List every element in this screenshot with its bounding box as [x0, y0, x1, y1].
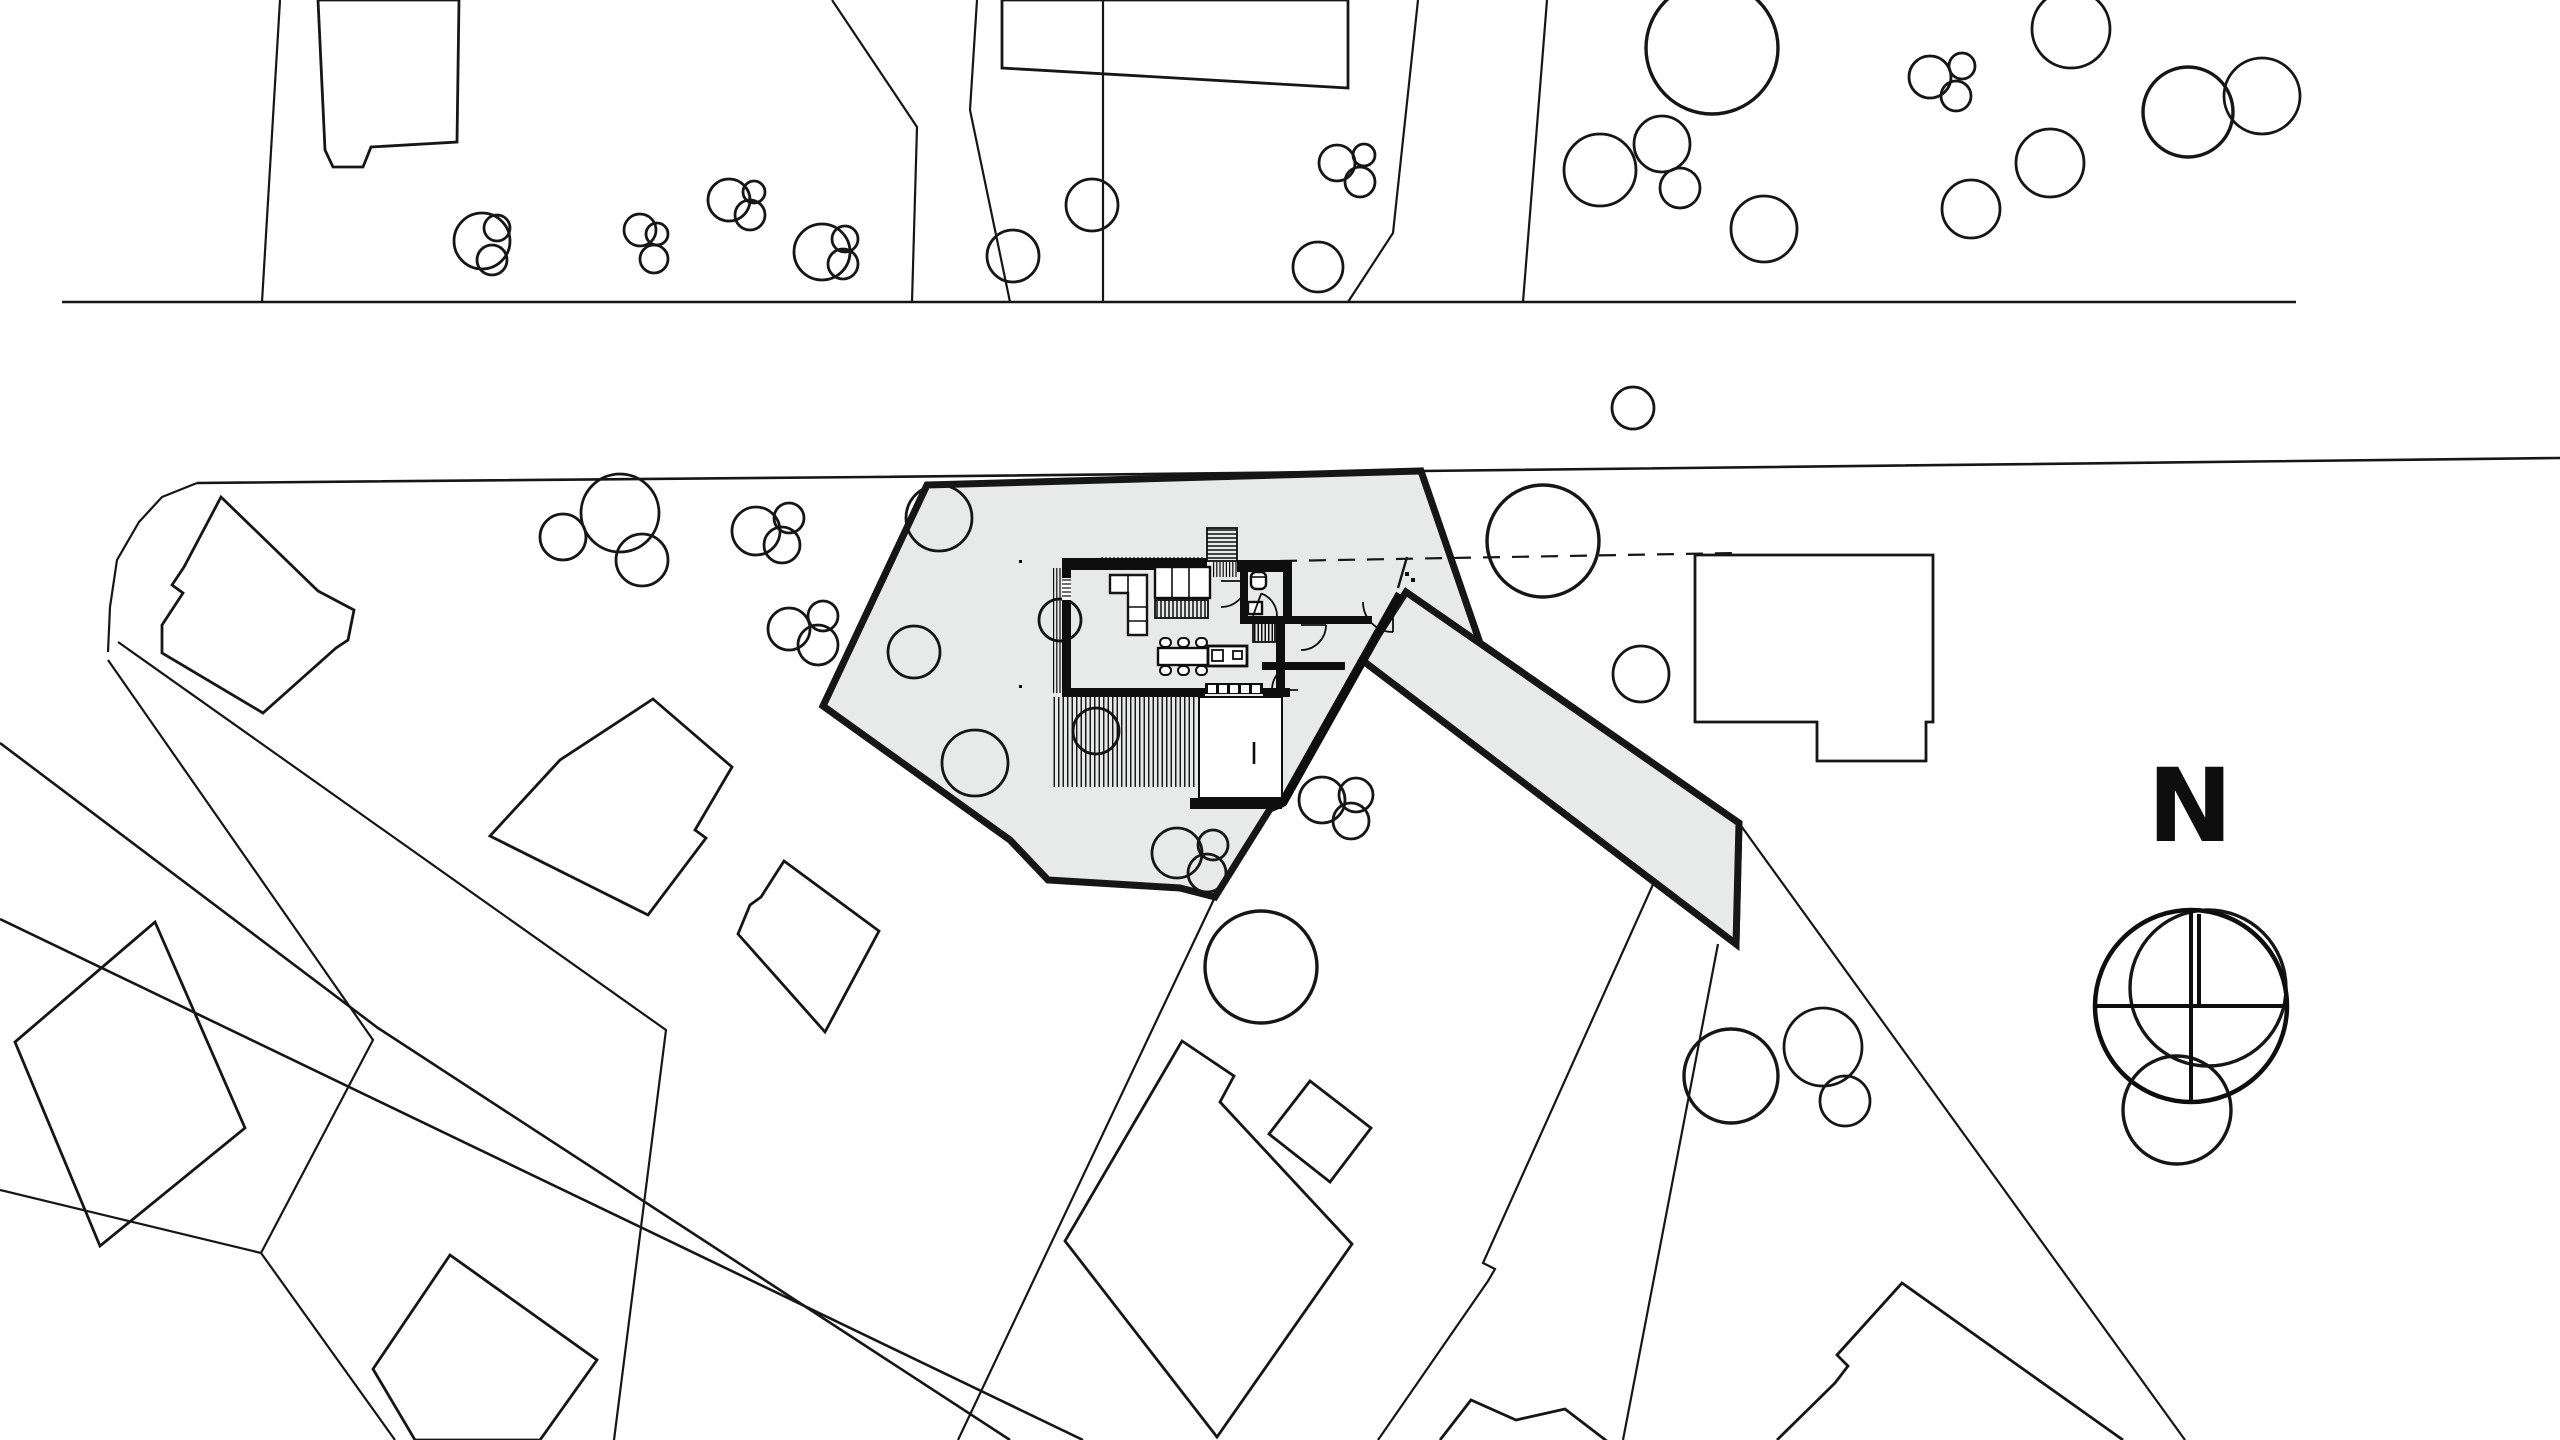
island-tap: [1233, 651, 1242, 659]
south-window-pane-2: [1219, 685, 1227, 693]
room-divider-wall: [1262, 662, 1345, 670]
chair-6: [1196, 666, 1207, 675]
toilet: [1251, 572, 1266, 589]
living-east-wall: [1276, 624, 1285, 697]
survey-dot-1: [1019, 560, 1022, 563]
island-sink: [1212, 650, 1223, 661]
chair-3: [1196, 638, 1207, 647]
chair-1: [1160, 638, 1171, 647]
bath-east-wall: [1283, 560, 1292, 624]
dining-table: [1158, 648, 1208, 665]
gate-dot-2: [1411, 578, 1415, 582]
south-window-pane-3: [1230, 685, 1238, 693]
kitchen-block: [1155, 567, 1210, 598]
chair-4: [1160, 666, 1171, 675]
chair-5: [1178, 666, 1189, 675]
south-window-pane-4: [1241, 685, 1249, 693]
gate-dot-1: [1405, 572, 1409, 576]
west-window: [1062, 578, 1071, 600]
survey-dot-2: [1019, 685, 1022, 688]
site-plan: N: [0, 0, 2560, 1440]
north-label: N: [2147, 747, 2232, 866]
south-wall-west: [1062, 688, 1205, 697]
annex-room: [1199, 697, 1282, 798]
terrace-south-wall: [1190, 798, 1282, 809]
south-window-pane-1: [1208, 685, 1216, 693]
south-window-pane-5: [1252, 685, 1260, 693]
chair-2: [1178, 638, 1189, 647]
